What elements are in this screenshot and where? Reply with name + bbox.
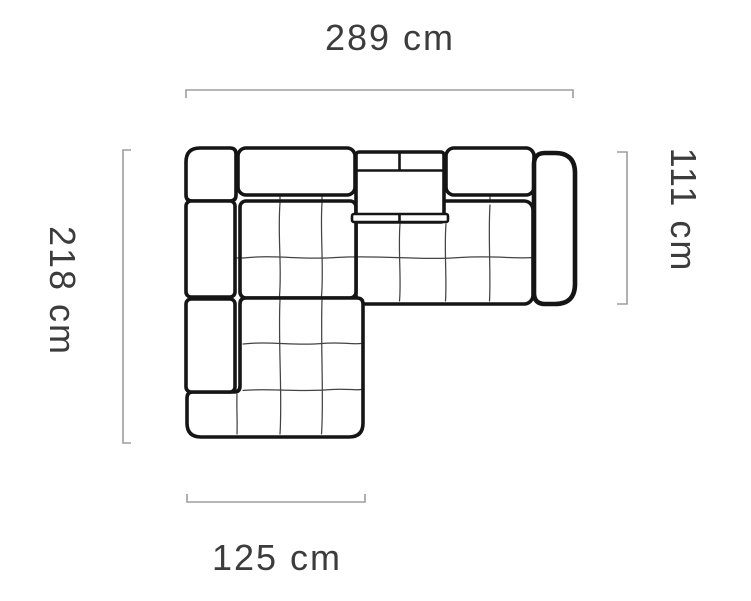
dimension-label-left: 218 cm: [42, 141, 82, 441]
right-armrest: [534, 153, 575, 304]
left-backrest-lower: [186, 299, 235, 392]
corner-seat: [240, 201, 356, 298]
left-dimension-bracket: [123, 150, 131, 443]
dimension-label-bottom: 125 cm: [127, 538, 427, 578]
back-cushion-right: [446, 148, 534, 195]
folded-headrest: [352, 152, 448, 222]
corner-backrest: [186, 148, 236, 201]
dimension-label-top: 289 cm: [240, 18, 540, 58]
dimension-label-right: 111 cm: [663, 60, 703, 360]
sofa-body: [186, 148, 575, 437]
back-cushion-left: [238, 148, 355, 195]
right-dimension-bracket: [617, 152, 627, 304]
bottom-dimension-bracket: [187, 494, 365, 502]
sofa-dimension-diagram: 289 cm 218 cm 111 cm 125 cm: [0, 0, 751, 601]
left-backrest-upper: [186, 201, 235, 297]
top-dimension-bracket: [186, 90, 573, 98]
sofa-drawing: [0, 0, 751, 601]
